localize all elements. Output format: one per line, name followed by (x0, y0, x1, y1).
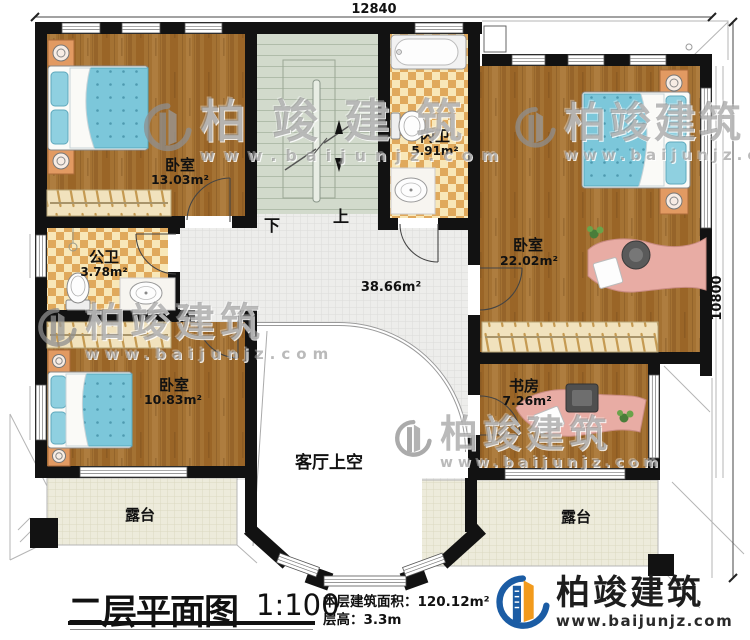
floor-height-value: 3.3m (364, 612, 402, 628)
window (122, 23, 160, 33)
window (630, 55, 666, 65)
window (505, 469, 625, 479)
window (80, 467, 187, 477)
inner-bath-area: 5.91m² (411, 144, 458, 158)
stairs-down-label: 下 (264, 216, 280, 235)
shaft-box (484, 26, 506, 52)
inner-bath-label: 内卫 (420, 127, 450, 145)
living-void-label: 客厅上空 (294, 452, 363, 473)
window (512, 55, 545, 65)
study-area: 7.26m² (502, 393, 551, 408)
terrace-right-label: 露台 (561, 508, 591, 526)
title-underline-thin (70, 629, 313, 630)
bedroom-r-area: 22.02m² (500, 253, 558, 268)
closet-bedroom-bl (47, 322, 171, 348)
terrace-left-label: 露台 (125, 506, 155, 524)
closet-bedroom-r (482, 322, 658, 352)
plan-title: 二层平面图 (68, 584, 238, 635)
floor-height-label: 层高： (323, 612, 364, 628)
sink (120, 278, 175, 310)
closet-bedroom-tl (47, 190, 171, 216)
window (62, 23, 100, 33)
window (649, 375, 659, 458)
floor-area-value: 120.12m² (418, 594, 490, 610)
window (185, 23, 222, 33)
window (36, 385, 46, 440)
public-bath-label: 公卫 (89, 248, 119, 266)
sink (391, 168, 435, 214)
bay-window (324, 576, 406, 586)
window (36, 235, 46, 277)
bedroom-r-label: 卧室 (513, 236, 543, 254)
floor-height-row: 层高：3.3m (323, 611, 490, 629)
dimension-top: 12840 (351, 2, 396, 17)
hallway-area: 38.66m² (361, 280, 421, 295)
bedroom-tl-area: 13.03m² (151, 172, 209, 187)
dimension-right: 10800 (710, 275, 725, 320)
floor-plan-page: 卧室 13.03m² 内卫 5.91m² 卧室 22.02m² 公卫 3.78m… (0, 0, 750, 640)
public-bath-area: 3.78m² (80, 265, 127, 279)
window (568, 55, 604, 65)
window (701, 88, 711, 228)
brand-logo: 柏竣建筑 www.baijunjz.com (492, 571, 733, 635)
brand-url: www.baijunjz.com (556, 612, 733, 630)
floor-area-row: 本层建筑面积：120.12m² (323, 593, 490, 611)
plan-info: 本层建筑面积：120.12m² 层高：3.3m (323, 593, 490, 629)
brand-logo-text: 柏竣建筑 www.baijunjz.com (556, 576, 733, 630)
brand-name: 柏竣建筑 (556, 576, 733, 612)
stairs-up-label: 上 (333, 207, 349, 226)
floor-plan-drawing: 卧室 13.03m² 内卫 5.91m² 卧室 22.02m² 公卫 3.78m… (0, 0, 750, 640)
bedroom-bl-area: 10.83m² (144, 392, 202, 407)
window (415, 23, 463, 33)
title-underline (68, 621, 315, 625)
brand-logo-icon (492, 571, 550, 635)
floor-area-label: 本层建筑面积： (323, 594, 418, 610)
